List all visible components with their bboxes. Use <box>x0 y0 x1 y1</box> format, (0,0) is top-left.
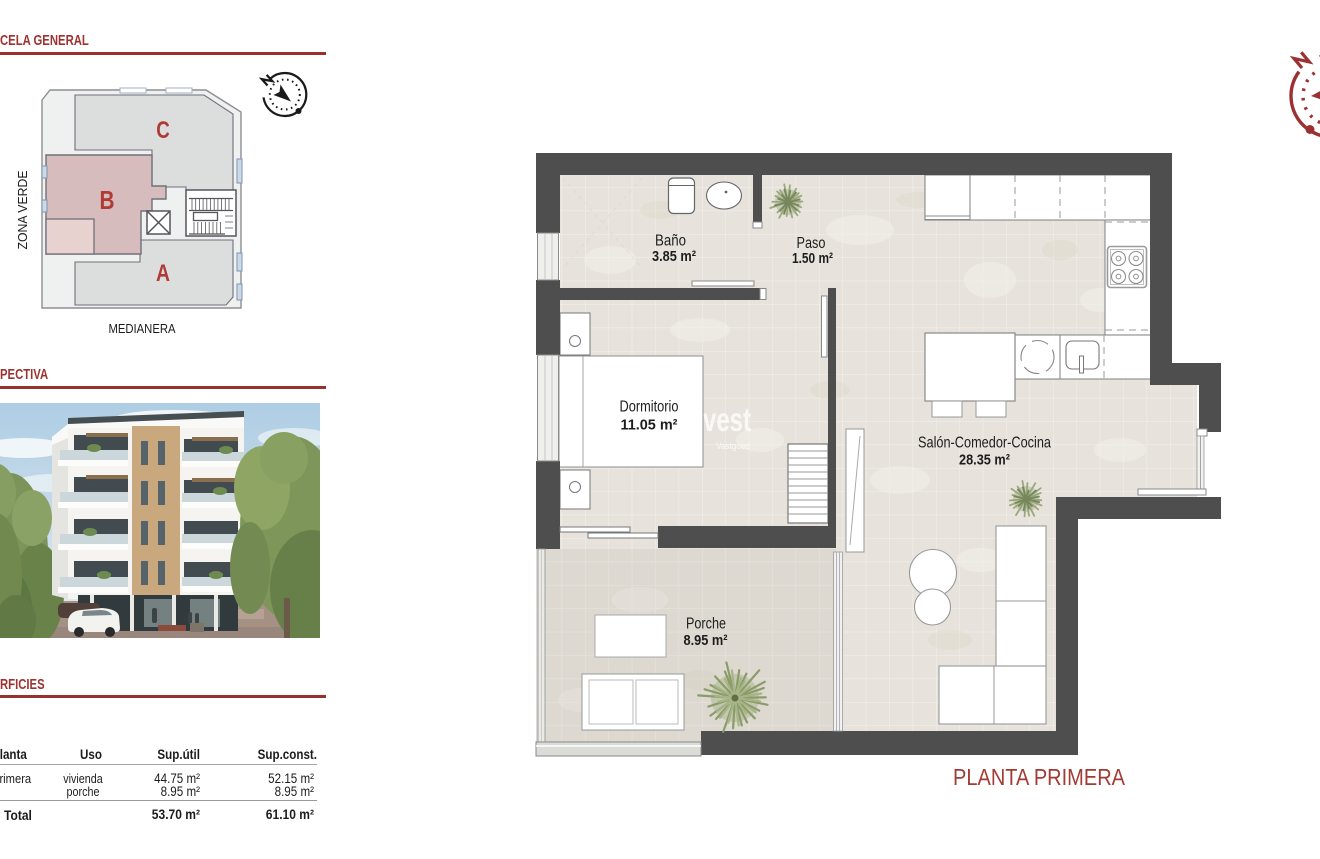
svg-text:Porche: Porche <box>686 616 726 633</box>
svg-text:MEDIANERA: MEDIANERA <box>109 321 176 336</box>
svg-text:vest: vest <box>703 401 751 438</box>
svg-text:A: A <box>156 260 170 287</box>
svg-text:Salón-Comedor-Cocina: Salón-Comedor-Cocina <box>918 435 1051 452</box>
svg-text:Baño: Baño <box>655 233 686 250</box>
svg-text:11.05 m²: 11.05 m² <box>621 417 678 434</box>
svg-text:3.85 m²: 3.85 m² <box>652 248 696 265</box>
svg-text:PLANTA PRIMERA: PLANTA PRIMERA <box>953 764 1125 790</box>
svg-text:28.35 m²: 28.35 m² <box>959 452 1010 469</box>
svg-text:Vastgoed: Vastgoed <box>716 441 750 452</box>
svg-text:ZONA VERDE: ZONA VERDE <box>15 170 30 249</box>
svg-text:B: B <box>100 185 115 215</box>
svg-text:Dormitorio: Dormitorio <box>620 399 679 416</box>
svg-text:8.95 m²: 8.95 m² <box>684 632 728 649</box>
svg-text:C: C <box>156 117 170 144</box>
svg-text:1.50 m²: 1.50 m² <box>792 250 833 267</box>
